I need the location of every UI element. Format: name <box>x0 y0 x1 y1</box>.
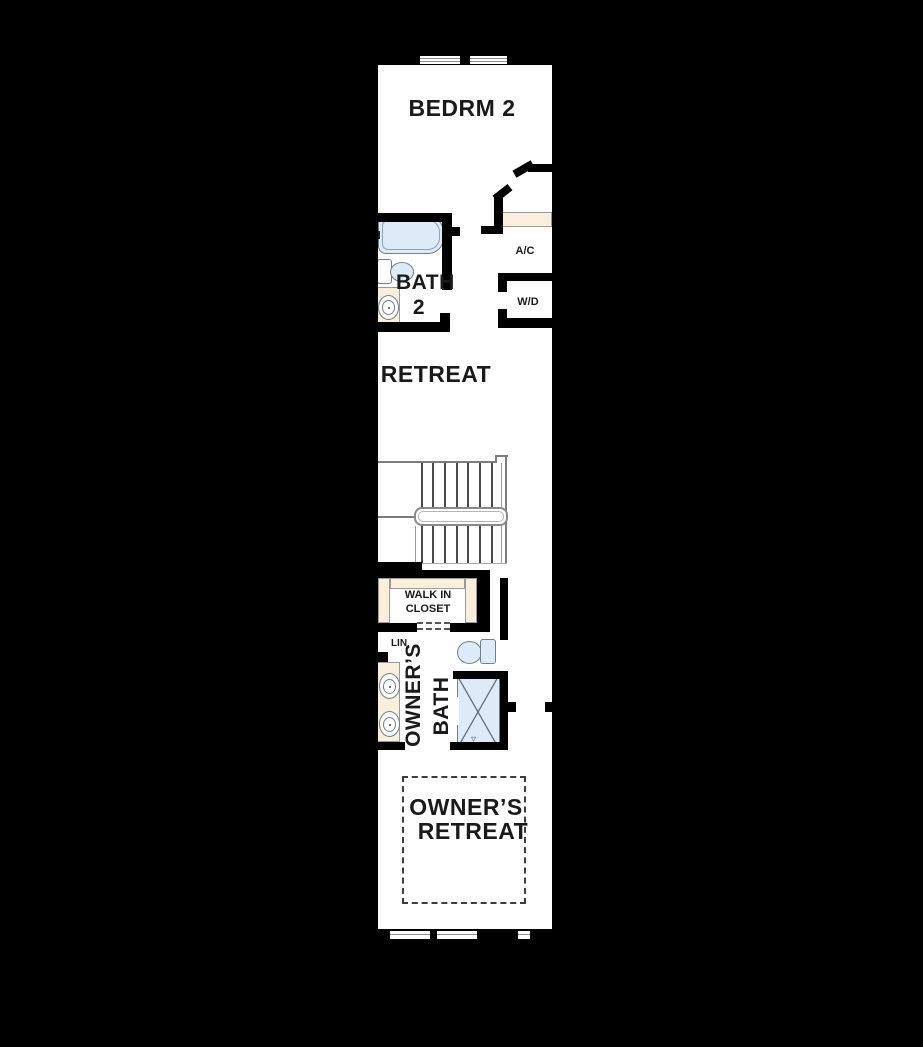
window-top-2 <box>470 56 507 64</box>
stair-tread <box>421 526 423 564</box>
shower-glass-x <box>458 677 498 747</box>
room-label-owners-retreat-line2: RETREAT <box>413 820 533 843</box>
wall-ac-closet-stub <box>481 226 503 234</box>
toilet-bowl-owners <box>457 641 482 664</box>
shower-fixture <box>457 676 500 749</box>
wall-exterior-left <box>368 55 378 941</box>
window-bottom-2 <box>437 931 477 939</box>
window-bottom-3 <box>518 931 530 939</box>
walk-in-closet-shelf-left <box>378 578 390 623</box>
room-label-owners-bath-word1: OWNER’S <box>403 640 425 750</box>
wall-exterior-right <box>552 55 562 941</box>
stair-tread <box>467 463 469 508</box>
wall-walkin-right <box>477 570 490 628</box>
stair-bottom-edge <box>415 563 507 564</box>
room-label-bedroom2: BEDRM 2 <box>402 97 522 120</box>
wall-retreat-door-stub <box>508 702 516 712</box>
stair-tread <box>444 463 446 508</box>
room-label-bath2-line1: BATH <box>396 272 446 293</box>
wall-retreat-door-nub <box>545 702 552 712</box>
wall-corridor <box>500 578 508 640</box>
stair-tread <box>432 463 434 508</box>
stair-tread <box>444 526 446 564</box>
wall-bath2-south <box>368 322 450 332</box>
closet-label-ac: A/C <box>505 246 545 257</box>
stair-handrail-inner <box>418 511 504 522</box>
stair-landing-line <box>378 516 415 518</box>
stair-tread <box>421 463 423 508</box>
wall-laundry-top-stub <box>498 273 507 292</box>
bathtub-rim <box>382 220 440 250</box>
walk-in-closet-shelf-right <box>465 578 477 623</box>
window-top-1 <box>420 56 460 64</box>
wall-walkin-bottom-right <box>450 623 490 632</box>
window-bottom-1 <box>390 931 430 939</box>
closet-label-walkin-line1: WALK IN <box>398 590 458 601</box>
stair-tread <box>467 526 469 564</box>
stair-lower-left-edge <box>415 526 416 564</box>
closet-label-wd: W/D <box>508 297 548 308</box>
stair-tread <box>491 463 493 508</box>
wall-laundry-bottom-stub <box>498 309 507 328</box>
stair-tread <box>479 463 481 508</box>
stair-tread <box>479 526 481 564</box>
stair-tread <box>491 526 493 564</box>
wall-toilet-nook <box>453 671 500 679</box>
floor-plan-canvas: ▿ BEDRM 2 BATH 2 <box>0 0 923 1047</box>
sink-owners-1-drain <box>389 686 391 688</box>
ac-closet-shelf <box>502 212 552 227</box>
stair-newel-side <box>495 455 497 463</box>
toilet-tank-owners <box>480 639 496 664</box>
room-label-owners-bath-word2: BATH <box>431 664 453 748</box>
room-label-retreat: RETREAT <box>376 363 496 386</box>
walk-in-closet-shelf-top <box>390 578 465 589</box>
sink-bath2-drain <box>388 307 390 309</box>
stair-tread <box>432 526 434 564</box>
wall-bath2-right-nub <box>450 227 460 236</box>
wall-walkin-top <box>368 570 490 578</box>
stair-tread <box>456 463 458 508</box>
stair-tread <box>456 526 458 564</box>
room-label-bath2-line2: 2 <box>394 297 444 318</box>
closet-opening-dashes <box>417 622 450 630</box>
wall-bath-south-right <box>450 742 508 750</box>
closet-label-walkin-line2: CLOSET <box>398 604 458 615</box>
wall-exterior-top <box>368 55 562 65</box>
shower-door-opening <box>455 697 459 725</box>
wall-bath2-top <box>378 213 450 222</box>
sink-owners-2-drain <box>389 724 391 726</box>
room-label-owners-retreat-line1: OWNER’S <box>406 796 526 819</box>
wall-shower-right <box>500 671 508 750</box>
